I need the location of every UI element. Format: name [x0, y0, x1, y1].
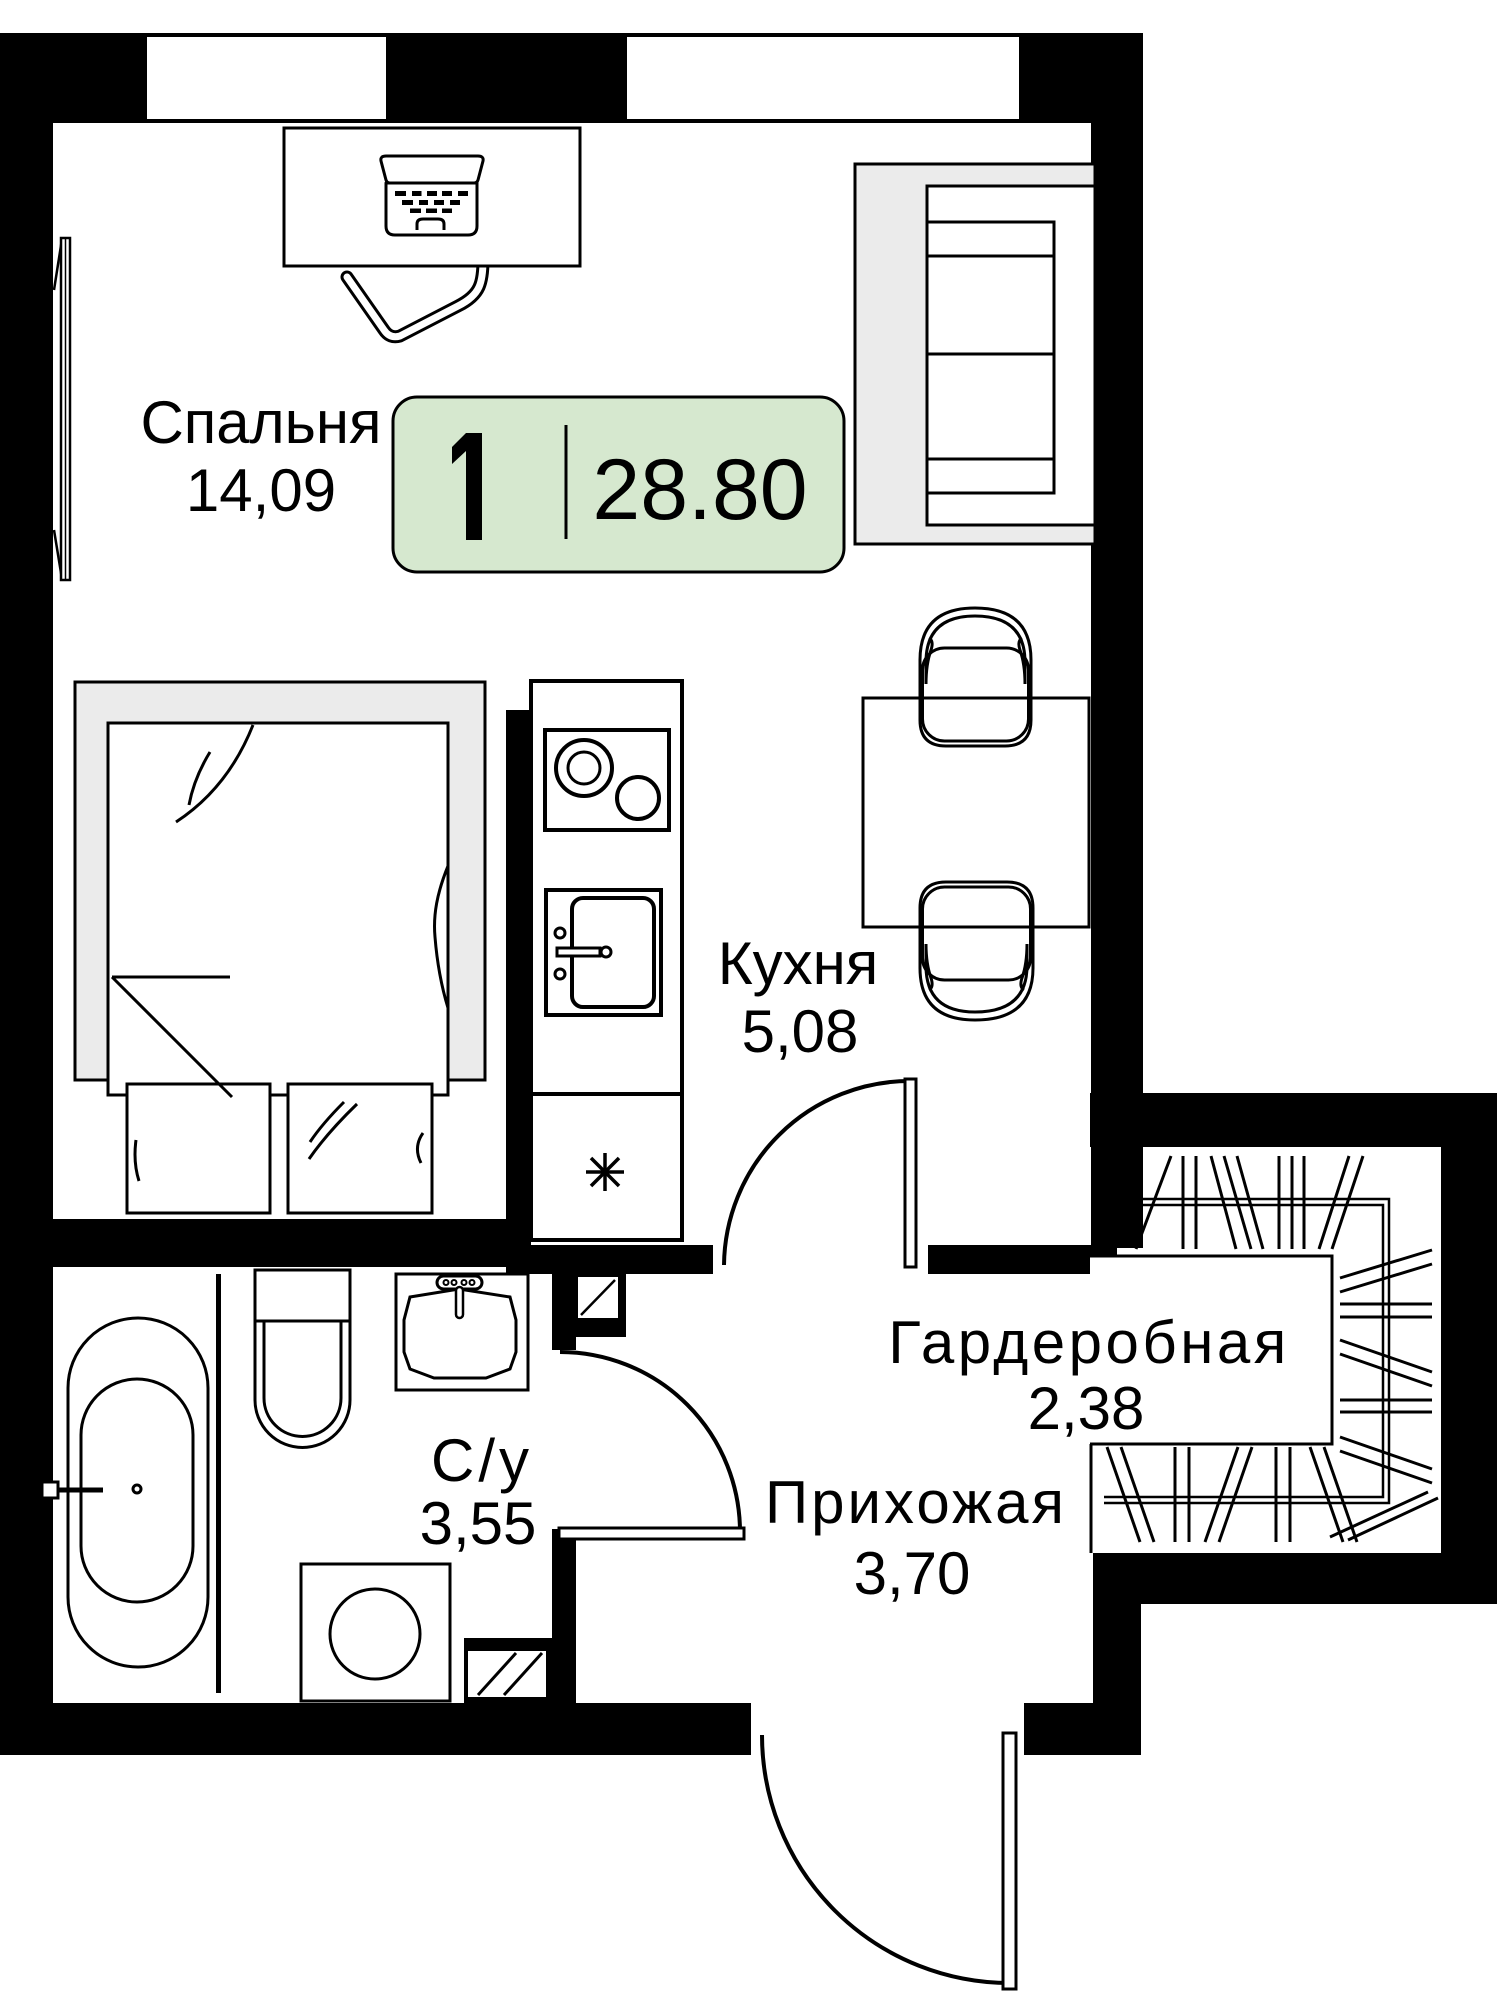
svg-text:3,70: 3,70 — [854, 1540, 971, 1607]
svg-text:Кухня: Кухня — [718, 930, 879, 997]
svg-text:14,09: 14,09 — [186, 457, 336, 524]
svg-text:28.80: 28.80 — [592, 442, 807, 538]
svg-text:3,55: 3,55 — [420, 1490, 537, 1557]
svg-text:Спальня: Спальня — [140, 389, 381, 456]
svg-text:2,38: 2,38 — [1028, 1375, 1145, 1442]
svg-text:Прихожая: Прихожая — [765, 1469, 1067, 1536]
svg-text:С/у: С/у — [431, 1427, 533, 1494]
svg-text:5,08: 5,08 — [742, 998, 859, 1065]
svg-text:Гардеробная: Гардеробная — [888, 1309, 1289, 1376]
